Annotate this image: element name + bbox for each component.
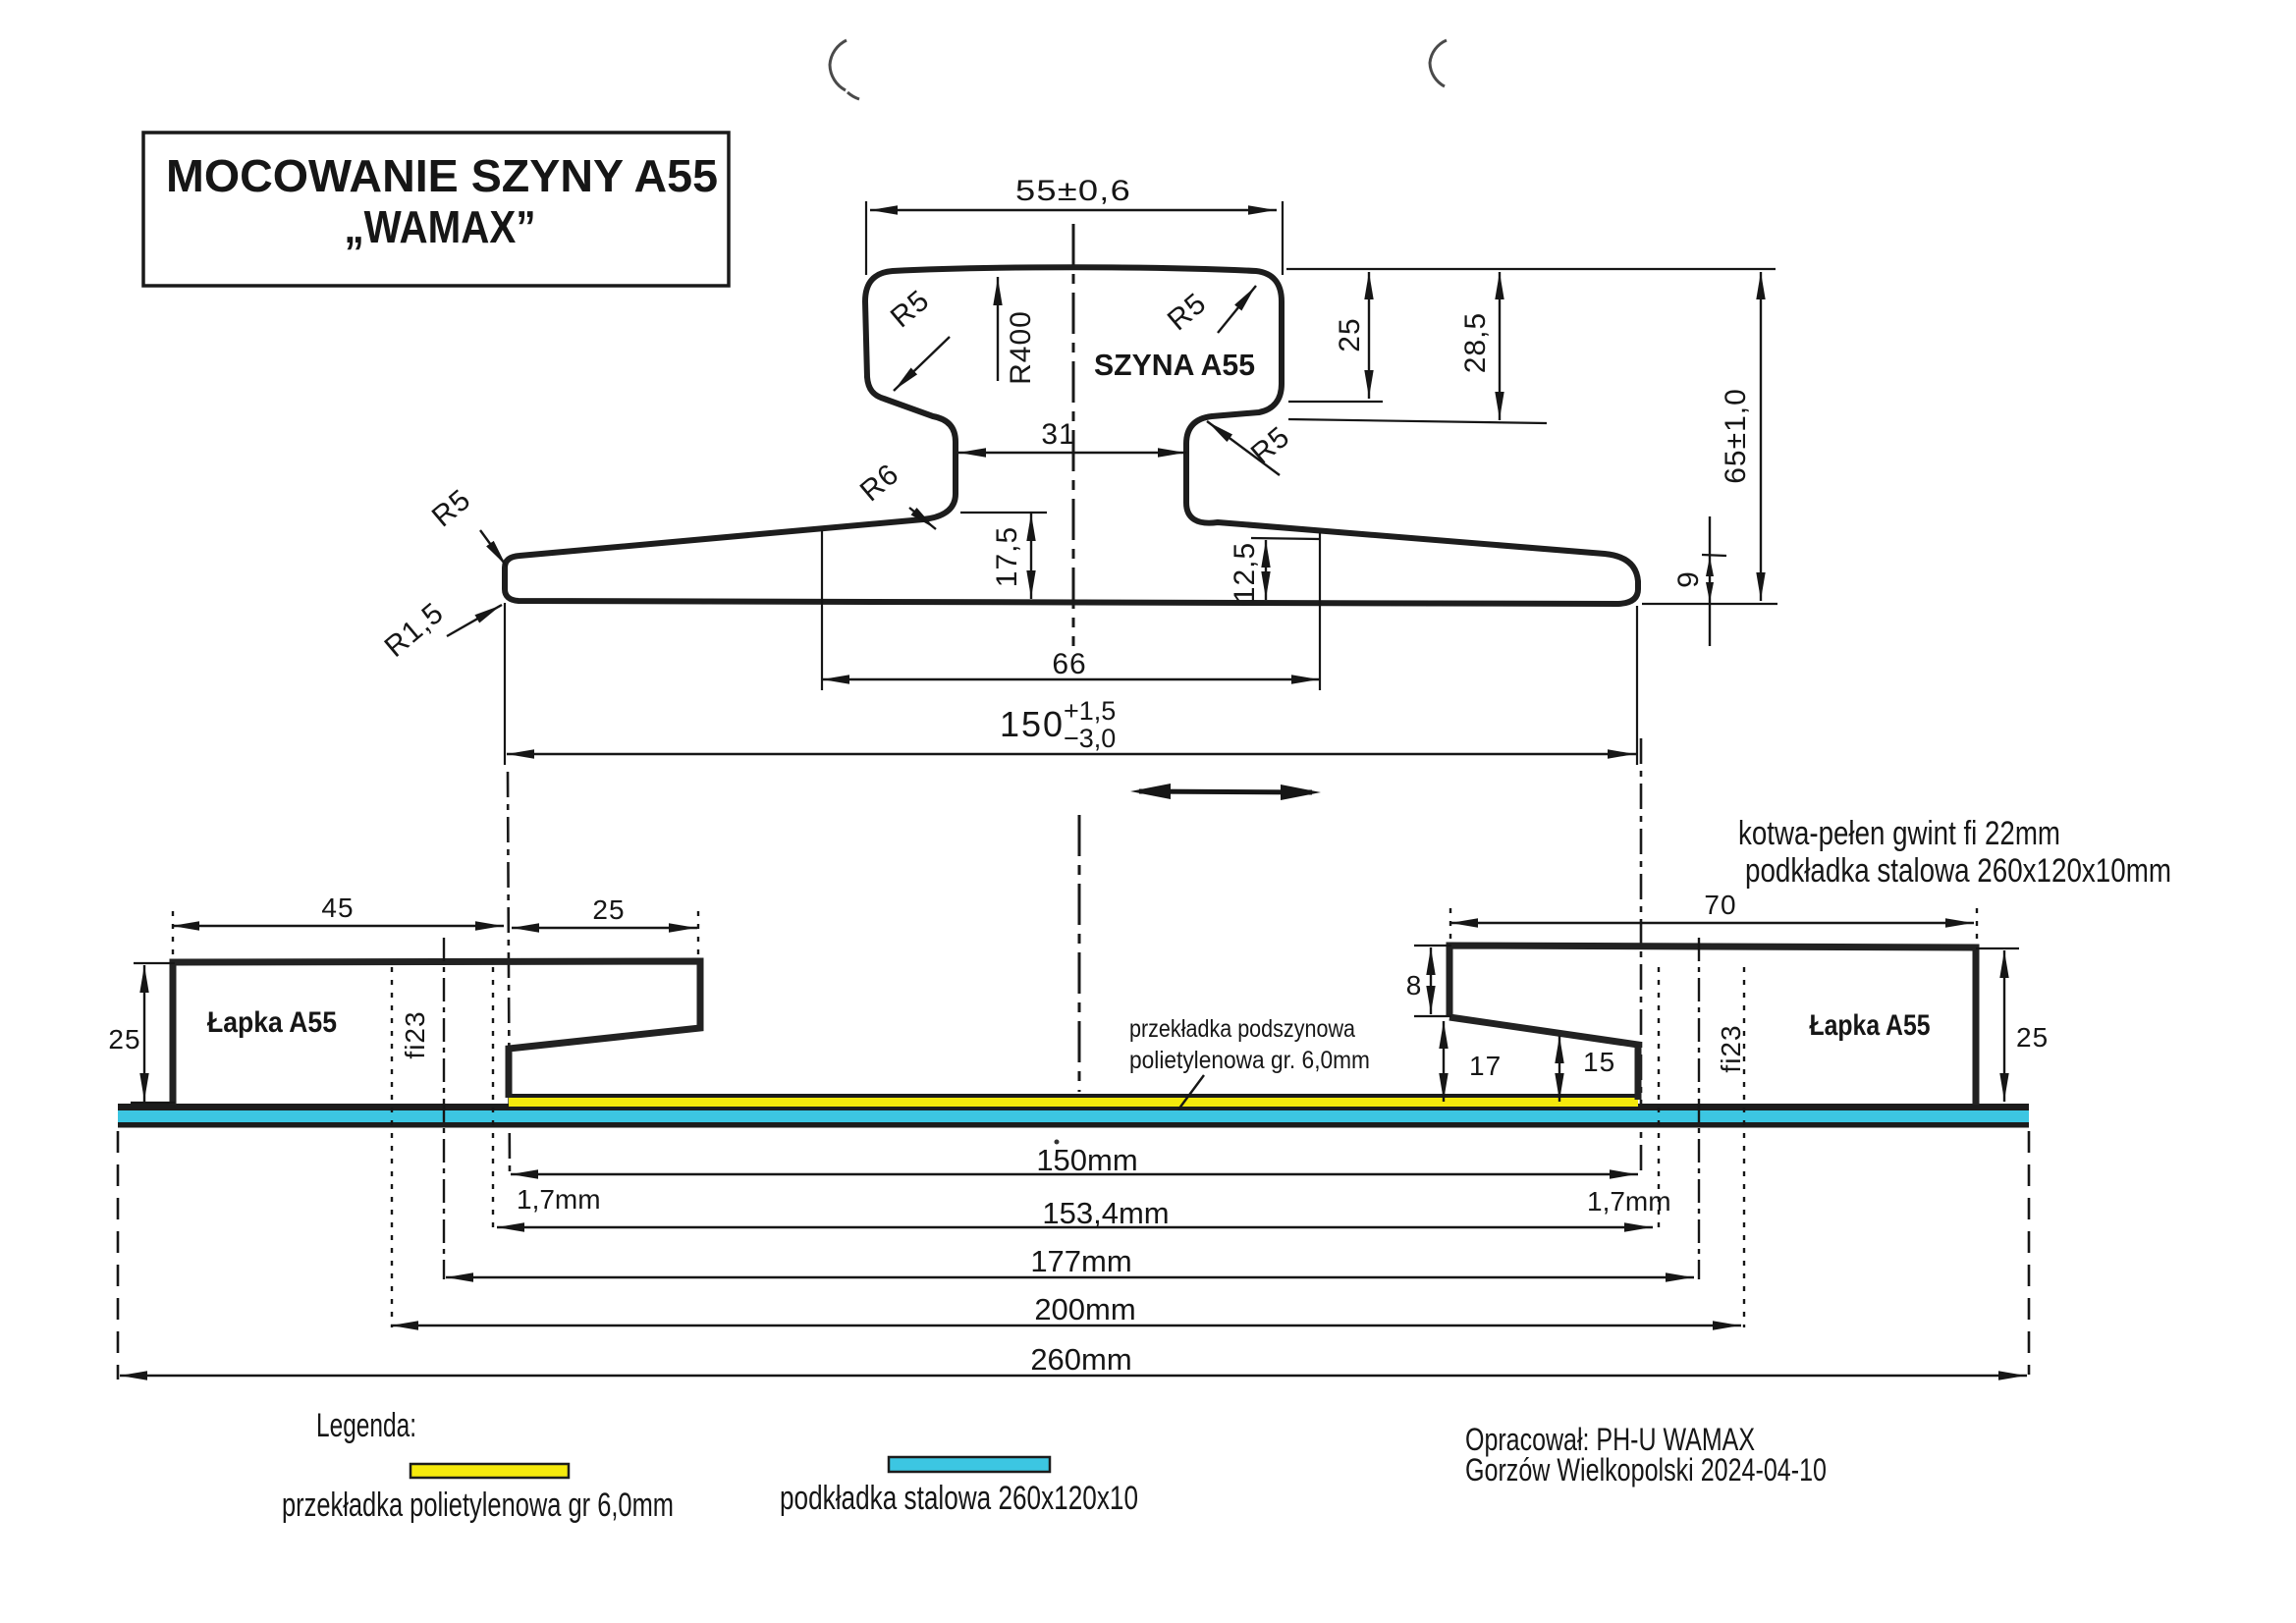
svg-text:Legenda:: Legenda: [316,1407,416,1444]
svg-text:polietylenowa gr. 6,0mm: polietylenowa gr. 6,0mm [1129,1047,1370,1074]
svg-text:150mm: 150mm [1036,1143,1137,1177]
svg-text:8: 8 [1406,970,1423,1001]
svg-text:9: 9 [1672,570,1705,588]
svg-text:Gorzów Wielkopolski 2024-04-10: Gorzów Wielkopolski 2024-04-10 [1465,1452,1827,1488]
svg-text:MOCOWANIE SZYNY A55: MOCOWANIE SZYNY A55 [166,150,718,201]
svg-text:25: 25 [1334,317,1366,352]
svg-text:1,7mm: 1,7mm [1587,1186,1671,1217]
svg-text:+1,5: +1,5 [1064,696,1116,726]
svg-text:17: 17 [1469,1051,1502,1081]
svg-text:55±0,6: 55±0,6 [1015,175,1131,207]
svg-text:R400: R400 [1005,310,1037,385]
svg-text:fi23: fi23 [400,1010,430,1058]
svg-text:25: 25 [2016,1022,2049,1053]
svg-text:„WAMAX”: „WAMAX” [345,201,536,252]
svg-text:−3,0: −3,0 [1064,724,1116,753]
svg-text:66: 66 [1052,648,1086,680]
svg-text:45: 45 [321,893,354,923]
svg-text:25: 25 [592,894,625,925]
svg-text:1,7mm: 1,7mm [517,1184,601,1215]
svg-text:Łapka A55: Łapka A55 [1810,1009,1931,1042]
svg-text:15: 15 [1583,1047,1615,1077]
svg-text:12,5: 12,5 [1229,542,1261,603]
svg-text:SZYNA A55: SZYNA A55 [1094,348,1255,382]
svg-text:177mm: 177mm [1030,1244,1131,1278]
svg-text:70: 70 [1704,890,1736,920]
svg-text:28,5: 28,5 [1459,312,1492,373]
svg-text:kotwa-pełen gwint fi 22mm: kotwa-pełen gwint fi 22mm [1738,815,2060,852]
svg-text:przekładka polietylenowa gr 6: przekładka polietylenowa gr 6,0mm [282,1487,674,1524]
svg-text:podkładka stalowa 260x120x10: podkładka stalowa 260x120x10 [780,1480,1138,1517]
svg-text:65±1,0: 65±1,0 [1720,388,1752,484]
svg-text:Łapka A55: Łapka A55 [207,1006,337,1039]
svg-text:150: 150 [1000,704,1065,744]
svg-text:fi23: fi23 [1716,1024,1746,1072]
svg-text:25: 25 [108,1024,140,1055]
svg-text:17,5: 17,5 [991,526,1023,587]
svg-text:153,4mm: 153,4mm [1042,1196,1169,1230]
svg-text:podkładka stalowa 260x120x10mm: podkładka stalowa 260x120x10mm [1745,852,2171,890]
svg-text:260mm: 260mm [1030,1342,1131,1377]
svg-text:31: 31 [1041,418,1075,451]
svg-text:przekładka podszynowa: przekładka podszynowa [1129,1015,1355,1043]
svg-text:200mm: 200mm [1034,1292,1135,1326]
